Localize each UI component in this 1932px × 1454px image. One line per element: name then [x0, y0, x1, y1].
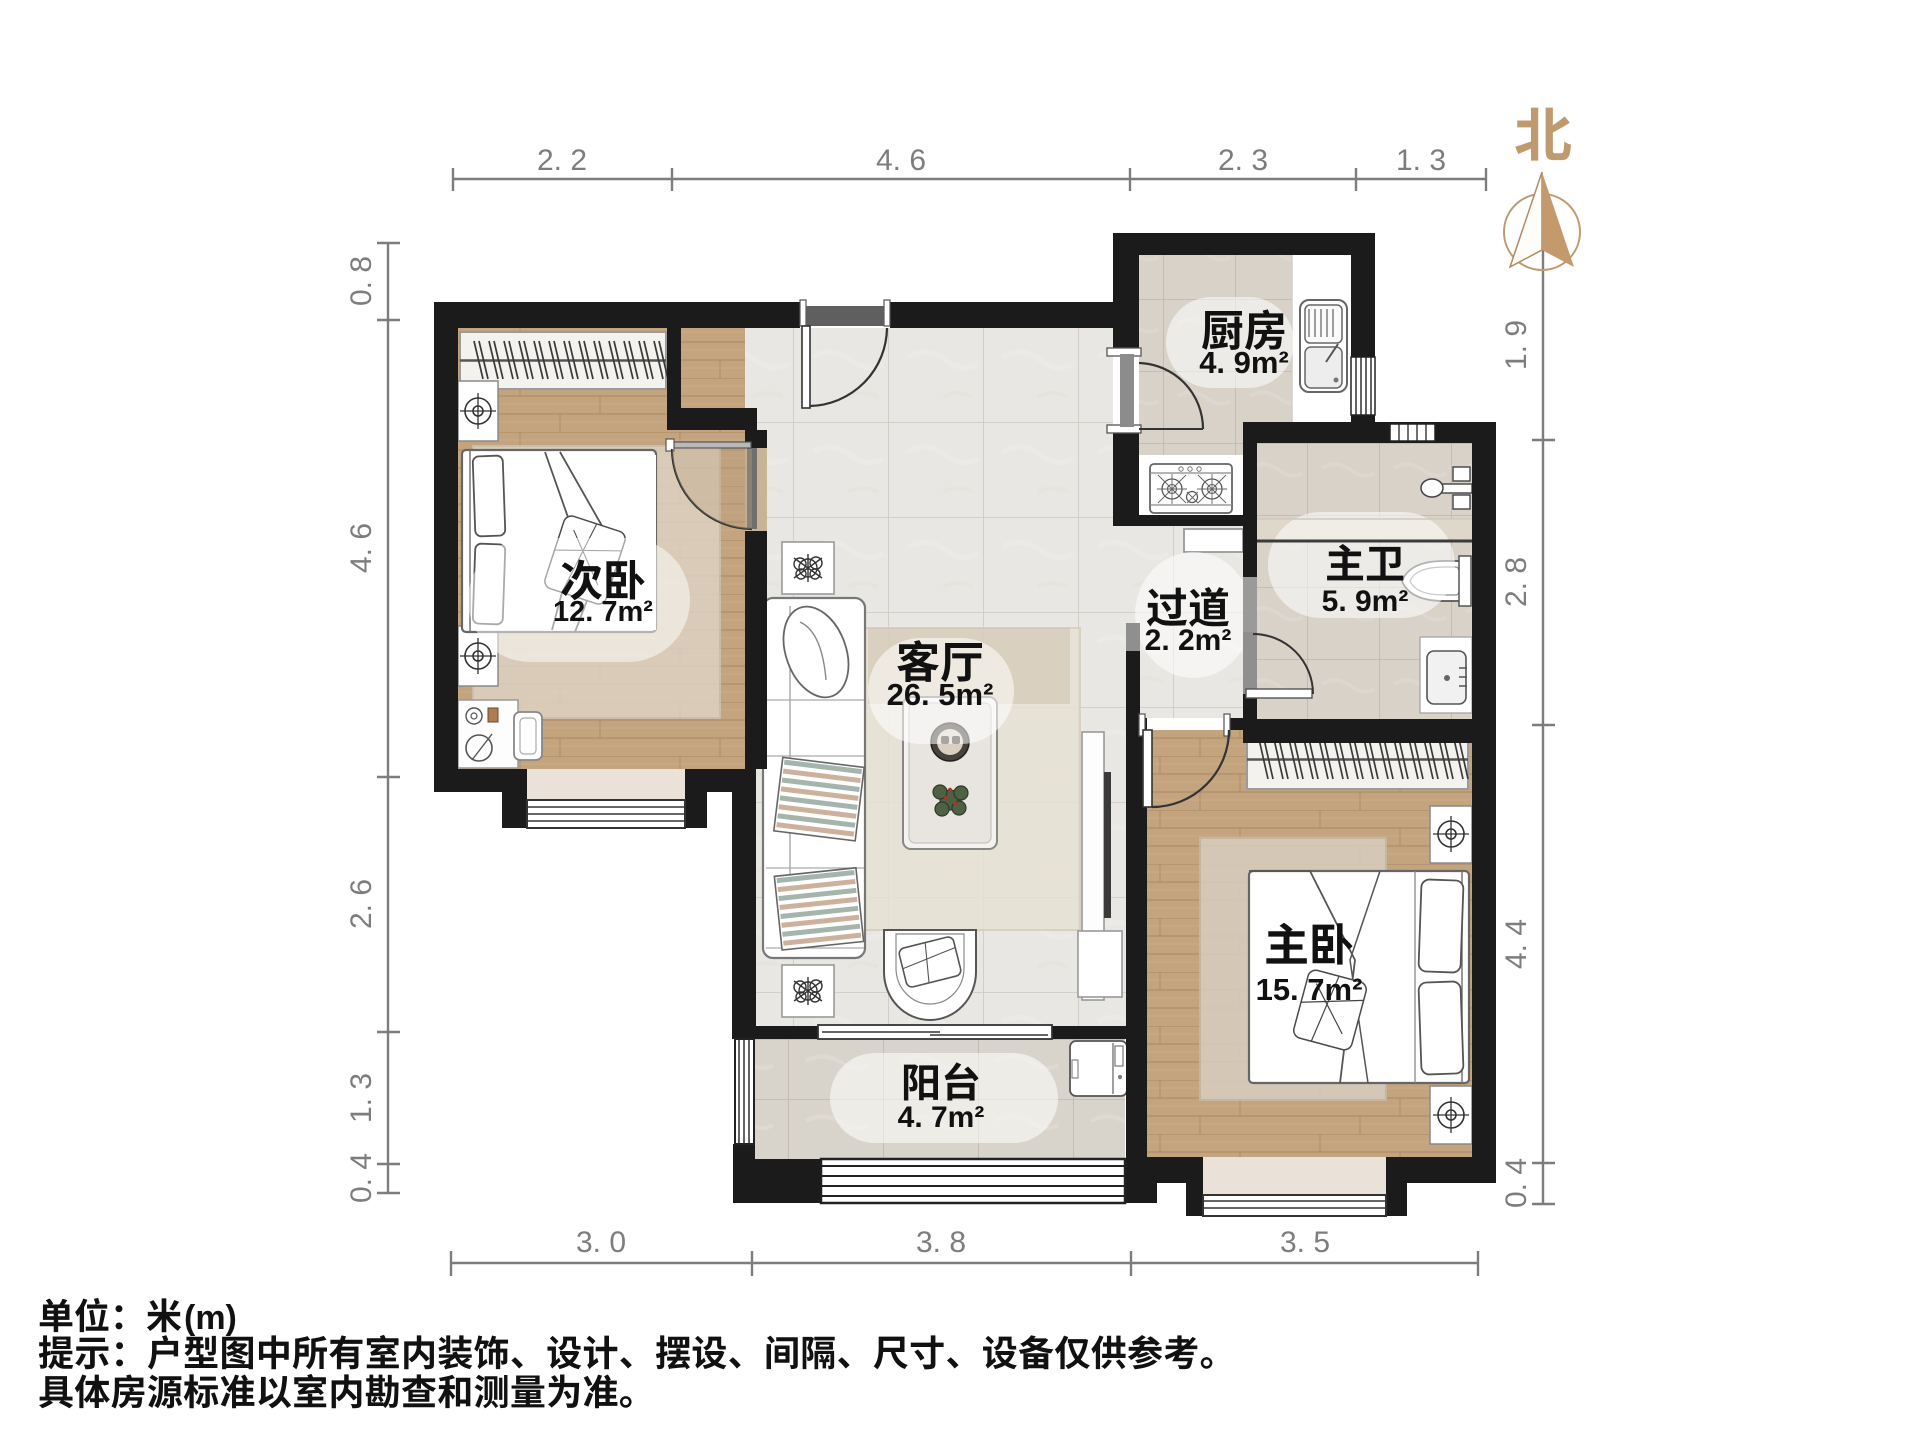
svg-text:3. 0: 3. 0: [576, 1226, 626, 1259]
svg-text:12. 7m²: 12. 7m²: [553, 596, 653, 628]
svg-text:4. 4: 4. 4: [1500, 919, 1533, 969]
svg-text:1. 3: 1. 3: [1396, 144, 1446, 177]
svg-text:(m): (m): [184, 1299, 237, 1337]
svg-text:3. 8: 3. 8: [916, 1226, 966, 1259]
svg-text:0. 8: 0. 8: [345, 256, 378, 306]
svg-text:5. 9m²: 5. 9m²: [1322, 585, 1409, 618]
svg-text:2. 2m²: 2. 2m²: [1145, 624, 1232, 657]
svg-text:4. 6: 4. 6: [345, 523, 378, 573]
svg-text:1. 9: 1. 9: [1500, 320, 1533, 370]
svg-text:0. 4: 0. 4: [1500, 1158, 1533, 1208]
svg-text:3. 5: 3. 5: [1280, 1226, 1330, 1259]
svg-text:4. 7m²: 4. 7m²: [898, 1101, 985, 1134]
svg-text:4. 6: 4. 6: [876, 144, 926, 177]
svg-text:0. 4: 0. 4: [345, 1153, 378, 1203]
svg-text:2. 6: 2. 6: [345, 879, 378, 929]
svg-text:2. 2: 2. 2: [537, 144, 587, 177]
svg-text:1. 3: 1. 3: [345, 1073, 378, 1123]
svg-text:2. 3: 2. 3: [1218, 144, 1268, 177]
svg-text:15. 7m²: 15. 7m²: [1256, 972, 1363, 1007]
svg-text:26. 5m²: 26. 5m²: [887, 677, 994, 712]
svg-text:4. 9m²: 4. 9m²: [1199, 345, 1289, 380]
svg-text:2. 8: 2. 8: [1500, 557, 1533, 607]
